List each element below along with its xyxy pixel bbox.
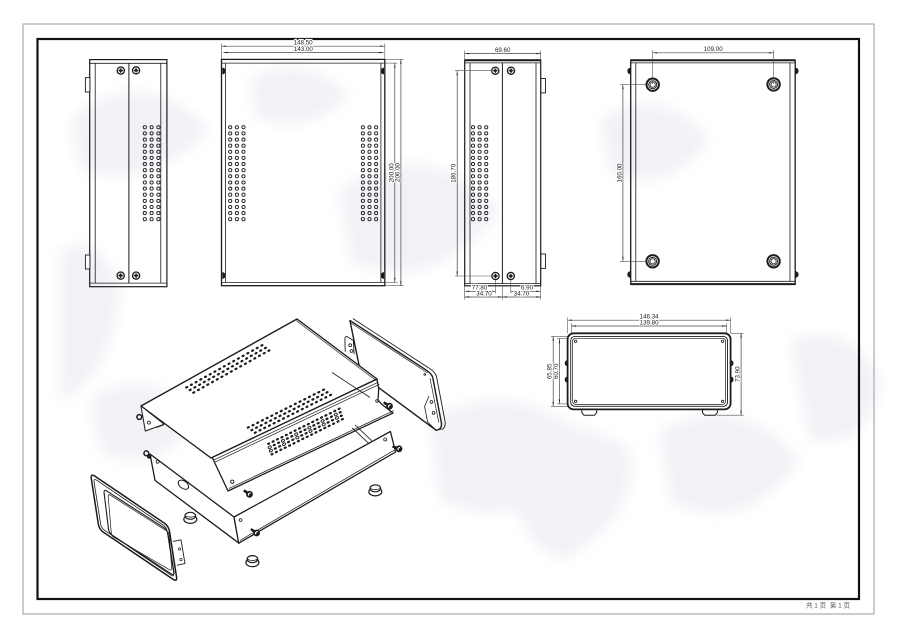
svg-text:160.00: 160.00 [616,163,623,182]
svg-text:73.90: 73.90 [735,366,742,382]
svg-text:143.00: 143.00 [294,46,313,53]
svg-text:206.00: 206.00 [394,162,401,181]
svg-text:60.70: 60.70 [553,363,560,379]
svg-text:共 1 页 第 1 页: 共 1 页 第 1 页 [806,601,851,610]
svg-text:69.60: 69.60 [495,47,511,54]
svg-text:34.70: 34.70 [476,290,492,297]
svg-text:186.70: 186.70 [451,163,458,182]
svg-text:139.80: 139.80 [640,319,659,326]
svg-text:109.00: 109.00 [704,46,723,53]
svg-text:34.70: 34.70 [514,290,530,297]
